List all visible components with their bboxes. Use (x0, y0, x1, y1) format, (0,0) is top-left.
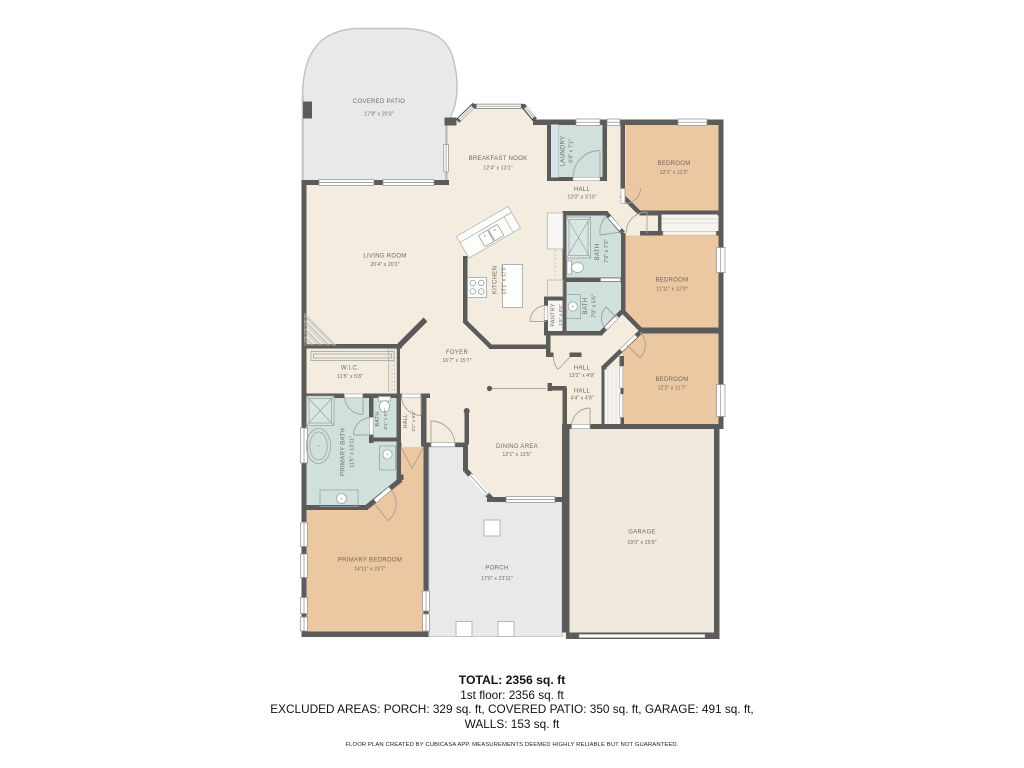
svg-text:PORCH: PORCH (485, 566, 508, 572)
svg-text:HALL: HALL (574, 366, 591, 372)
svg-text:6'8" x 7'1": 6'8" x 7'1" (569, 139, 575, 162)
svg-text:11'11" x 12'0": 11'11" x 12'0" (656, 287, 688, 293)
svg-text:4'4" x 4'8": 4'4" x 4'8" (570, 396, 593, 402)
svg-text:LIVING ROOM: LIVING ROOM (363, 254, 406, 260)
svg-text:12'2" x 11'7": 12'2" x 11'7" (658, 386, 687, 392)
svg-text:BREAKFAST NOOK: BREAKFAST NOOK (469, 156, 528, 162)
svg-text:19'0" x 25'9": 19'0" x 25'9" (627, 540, 656, 546)
svg-text:FOYER: FOYER (446, 350, 469, 356)
svg-text:11'5" x 5'8": 11'5" x 5'8" (337, 374, 363, 380)
svg-text:16'7" x 15'7": 16'7" x 15'7" (442, 358, 471, 364)
svg-text:LAUNDRY: LAUNDRY (561, 136, 567, 167)
svg-text:12'4" x 13'1": 12'4" x 13'1" (483, 166, 512, 172)
svg-text:11'5" x 13'11": 11'5" x 13'11" (350, 436, 356, 468)
svg-text:13'2" x 4'8": 13'2" x 4'8" (569, 373, 595, 379)
svg-text:HALL: HALL (574, 187, 591, 193)
svg-text:HALL: HALL (574, 389, 591, 395)
svg-text:PRIMARY BEDROOM: PRIMARY BEDROOM (338, 558, 402, 564)
svg-text:12'1" x 11'2": 12'1" x 11'2" (660, 170, 689, 176)
svg-text:BATH: BATH (375, 411, 381, 426)
svg-text:HALL: HALL (403, 414, 409, 429)
svg-text:7'0" x 6'6": 7'0" x 6'6" (592, 294, 598, 317)
svg-text:1'9" x 6'6": 1'9" x 6'6" (558, 304, 563, 325)
svg-text:GARAGE: GARAGE (628, 530, 655, 536)
svg-text:BEDROOM: BEDROOM (655, 377, 688, 383)
svg-text:W.I.C.: W.I.C. (341, 366, 359, 372)
svg-text:3'1" x 5'7": 3'1" x 5'7" (383, 408, 388, 429)
svg-text:12'1" x 13'5": 12'1" x 13'5" (502, 452, 531, 458)
svg-text:BATH: BATH (595, 244, 601, 261)
svg-text:17'8" x 20'3": 17'8" x 20'3" (364, 112, 393, 118)
svg-text:BEDROOM: BEDROOM (657, 161, 690, 167)
svg-text:KITCHEN: KITCHEN (493, 266, 499, 294)
svg-text:COVERED PATIO: COVERED PATIO (353, 99, 405, 105)
svg-text:BATH: BATH (583, 298, 589, 315)
svg-text:12'0" x 3'10": 12'0" x 3'10" (567, 195, 596, 201)
svg-text:7'0" x 7'3": 7'0" x 7'3" (604, 239, 610, 262)
svg-text:BEDROOM: BEDROOM (655, 278, 688, 284)
svg-text:20'4" x 20'2": 20'4" x 20'2" (370, 262, 399, 268)
svg-text:PANTRY: PANTRY (551, 303, 557, 326)
svg-text:DINING AREA: DINING AREA (496, 444, 538, 450)
svg-text:14'11" x 23'7": 14'11" x 23'7" (354, 567, 386, 573)
svg-text:3'2" x 6'0": 3'2" x 6'0" (411, 410, 416, 431)
svg-text:17'0" x 23'11": 17'0" x 23'11" (481, 576, 513, 582)
svg-text:PRIMARY BATH: PRIMARY BATH (341, 428, 347, 476)
svg-text:13'1" x 17'0": 13'1" x 17'0" (502, 265, 508, 294)
